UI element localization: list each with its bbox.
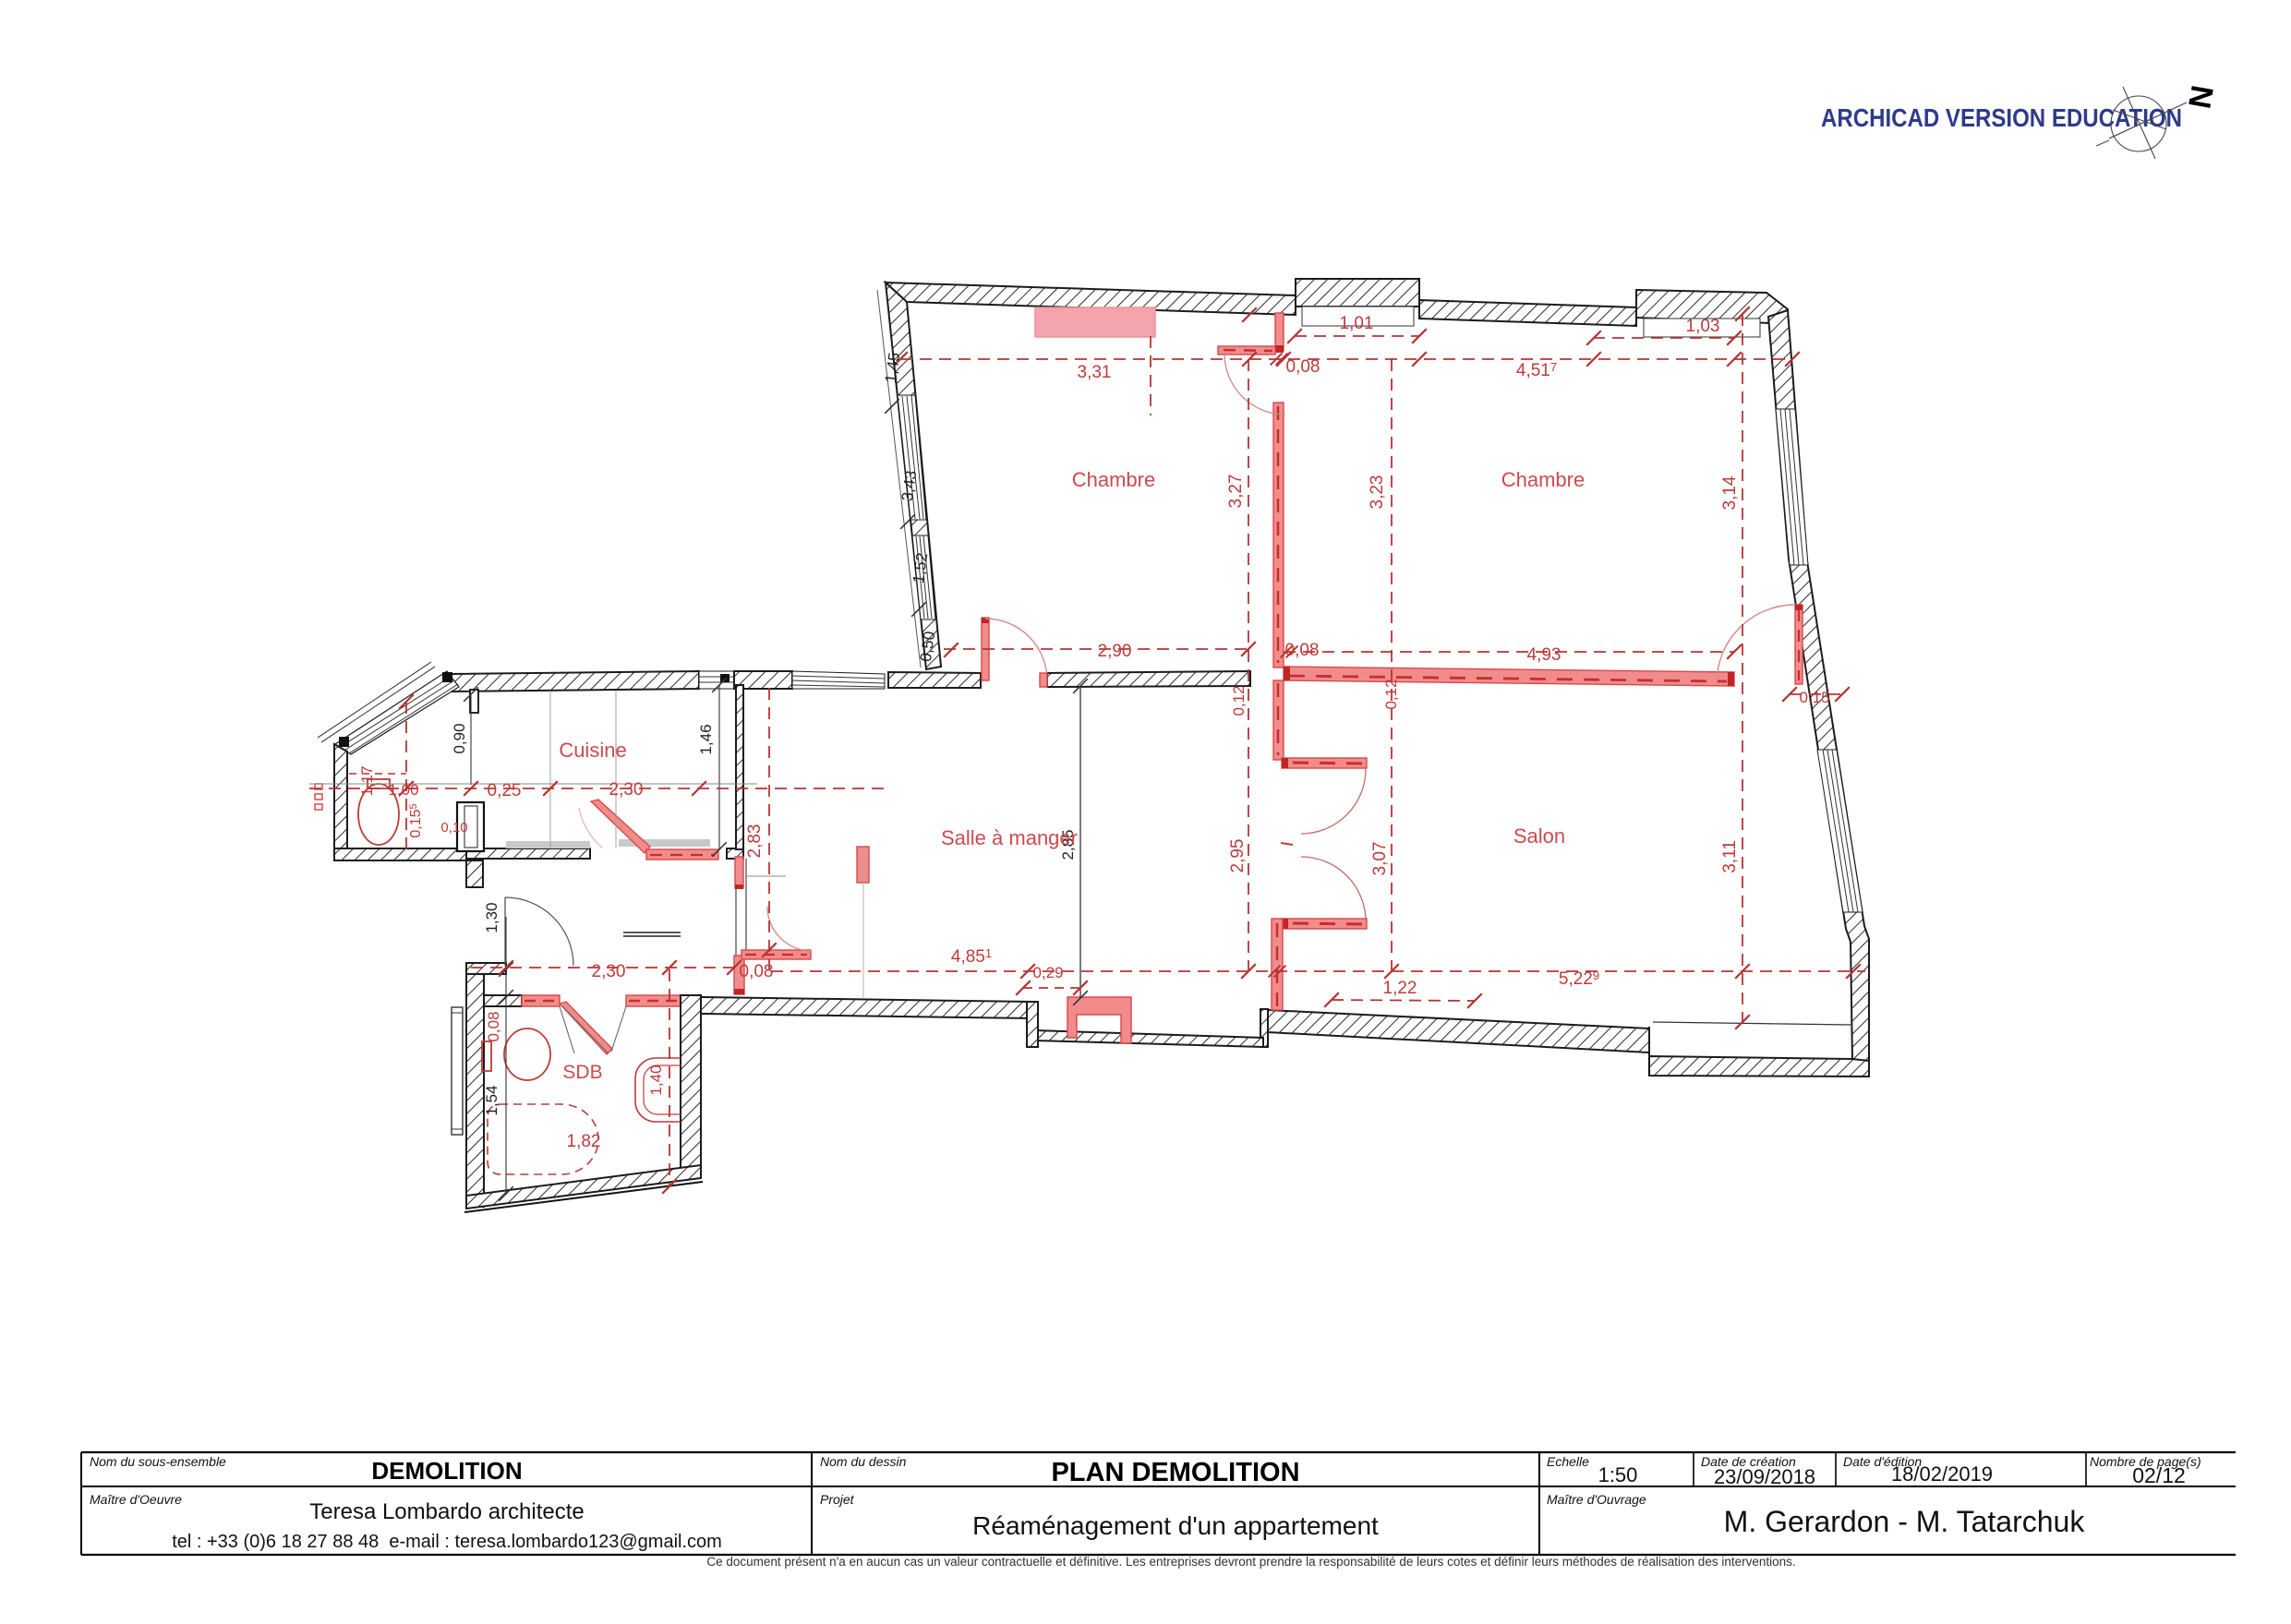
- svg-text:0,29: 0,29: [1032, 964, 1063, 981]
- svg-text:Nom du dessin: Nom du dessin: [820, 1454, 907, 1469]
- svg-text:1,03: 1,03: [1686, 317, 1720, 336]
- svg-text:3,11: 3,11: [1720, 840, 1740, 873]
- svg-text:0,08: 0,08: [485, 1011, 502, 1041]
- svg-text:Teresa Lombardo architecte: Teresa Lombardo architecte: [309, 1499, 585, 1524]
- svg-text:2,95: 2,95: [1228, 839, 1248, 873]
- svg-text:2,30: 2,30: [592, 962, 626, 981]
- svg-text:1,01: 1,01: [1340, 314, 1374, 333]
- svg-text:DEMOLITION: DEMOLITION: [371, 1457, 522, 1485]
- svg-text:3,23: 3,23: [1368, 475, 1387, 510]
- svg-text:Echelle: Echelle: [1547, 1454, 1589, 1469]
- svg-text:Réaménagement d'un appartement: Réaménagement d'un appartement: [972, 1511, 1379, 1540]
- svg-text:0,08: 0,08: [740, 962, 774, 981]
- svg-text:1,00: 1,00: [388, 781, 418, 799]
- svg-text:Ce document présent n'a en auc: Ce document présent n'a en aucun cas un …: [706, 1555, 1795, 1569]
- svg-text:1:50: 1:50: [1598, 1463, 1638, 1486]
- svg-text:Nom du sous-ensemble: Nom du sous-ensemble: [90, 1454, 226, 1469]
- svg-text:2,83: 2,83: [745, 824, 765, 859]
- svg-text:2,90: 2,90: [1098, 642, 1132, 661]
- svg-text:ARCHICAD VERSION EDUCATION: ARCHICAD VERSION EDUCATION: [1821, 103, 2182, 132]
- svg-text:1,46: 1,46: [697, 724, 715, 754]
- svg-text:SDB: SDB: [562, 1062, 602, 1083]
- svg-text:Maître d'Oeuvre: Maître d'Oeuvre: [90, 1492, 182, 1507]
- svg-text:3,07: 3,07: [1370, 842, 1390, 876]
- svg-text:Salon: Salon: [1513, 824, 1565, 848]
- svg-text:18/02/2019: 18/02/2019: [1891, 1462, 1993, 1486]
- svg-text:0,10: 0,10: [440, 820, 467, 836]
- svg-text:1,82: 1,82: [567, 1132, 601, 1151]
- svg-text:0,12: 0,12: [1230, 685, 1248, 716]
- svg-text:3,14: 3,14: [1720, 475, 1740, 510]
- svg-text:0,25: 0,25: [488, 781, 522, 800]
- svg-text:PLAN DEMOLITION: PLAN DEMOLITION: [1051, 1458, 1299, 1487]
- svg-text:2,30: 2,30: [609, 780, 644, 800]
- svg-text:1,40: 1,40: [647, 1065, 665, 1095]
- svg-text:Cuisine: Cuisine: [559, 739, 626, 762]
- svg-text:3,27: 3,27: [1226, 475, 1246, 509]
- svg-text:Projet: Projet: [820, 1492, 855, 1507]
- svg-text:0,90: 0,90: [451, 723, 468, 753]
- svg-text:0,15: 0,15: [1799, 689, 1829, 706]
- svg-text:1,17: 1,17: [358, 765, 376, 796]
- svg-text:Chambre: Chambre: [1501, 468, 1585, 491]
- svg-text:Salle à manger: Salle à manger: [941, 826, 1078, 849]
- svg-text:1,54: 1,54: [483, 1085, 500, 1115]
- svg-text:M. Gerardon - M. Tatarchuk: M. Gerardon - M. Tatarchuk: [1724, 1505, 2086, 1538]
- svg-text:Maître d'Ouvrage: Maître d'Ouvrage: [1547, 1492, 1646, 1507]
- svg-text:1,30: 1,30: [483, 902, 500, 932]
- svg-text:0,08: 0,08: [1286, 357, 1320, 377]
- svg-text:0,08: 0,08: [1285, 641, 1320, 660]
- svg-text:23/09/2018: 23/09/2018: [1714, 1465, 1815, 1488]
- svg-text:4,93: 4,93: [1527, 645, 1561, 665]
- svg-text:1,22: 1,22: [1383, 979, 1417, 998]
- svg-text:0,12: 0,12: [1382, 679, 1400, 709]
- svg-text:tel : +33 (0)6 18 27 88 48 e-: tel : +33 (0)6 18 27 88 48 e-mail : tere…: [172, 1532, 722, 1552]
- svg-text:Chambre: Chambre: [1072, 468, 1155, 491]
- svg-text:02/12: 02/12: [2132, 1463, 2186, 1487]
- svg-text:3,31: 3,31: [1078, 363, 1112, 382]
